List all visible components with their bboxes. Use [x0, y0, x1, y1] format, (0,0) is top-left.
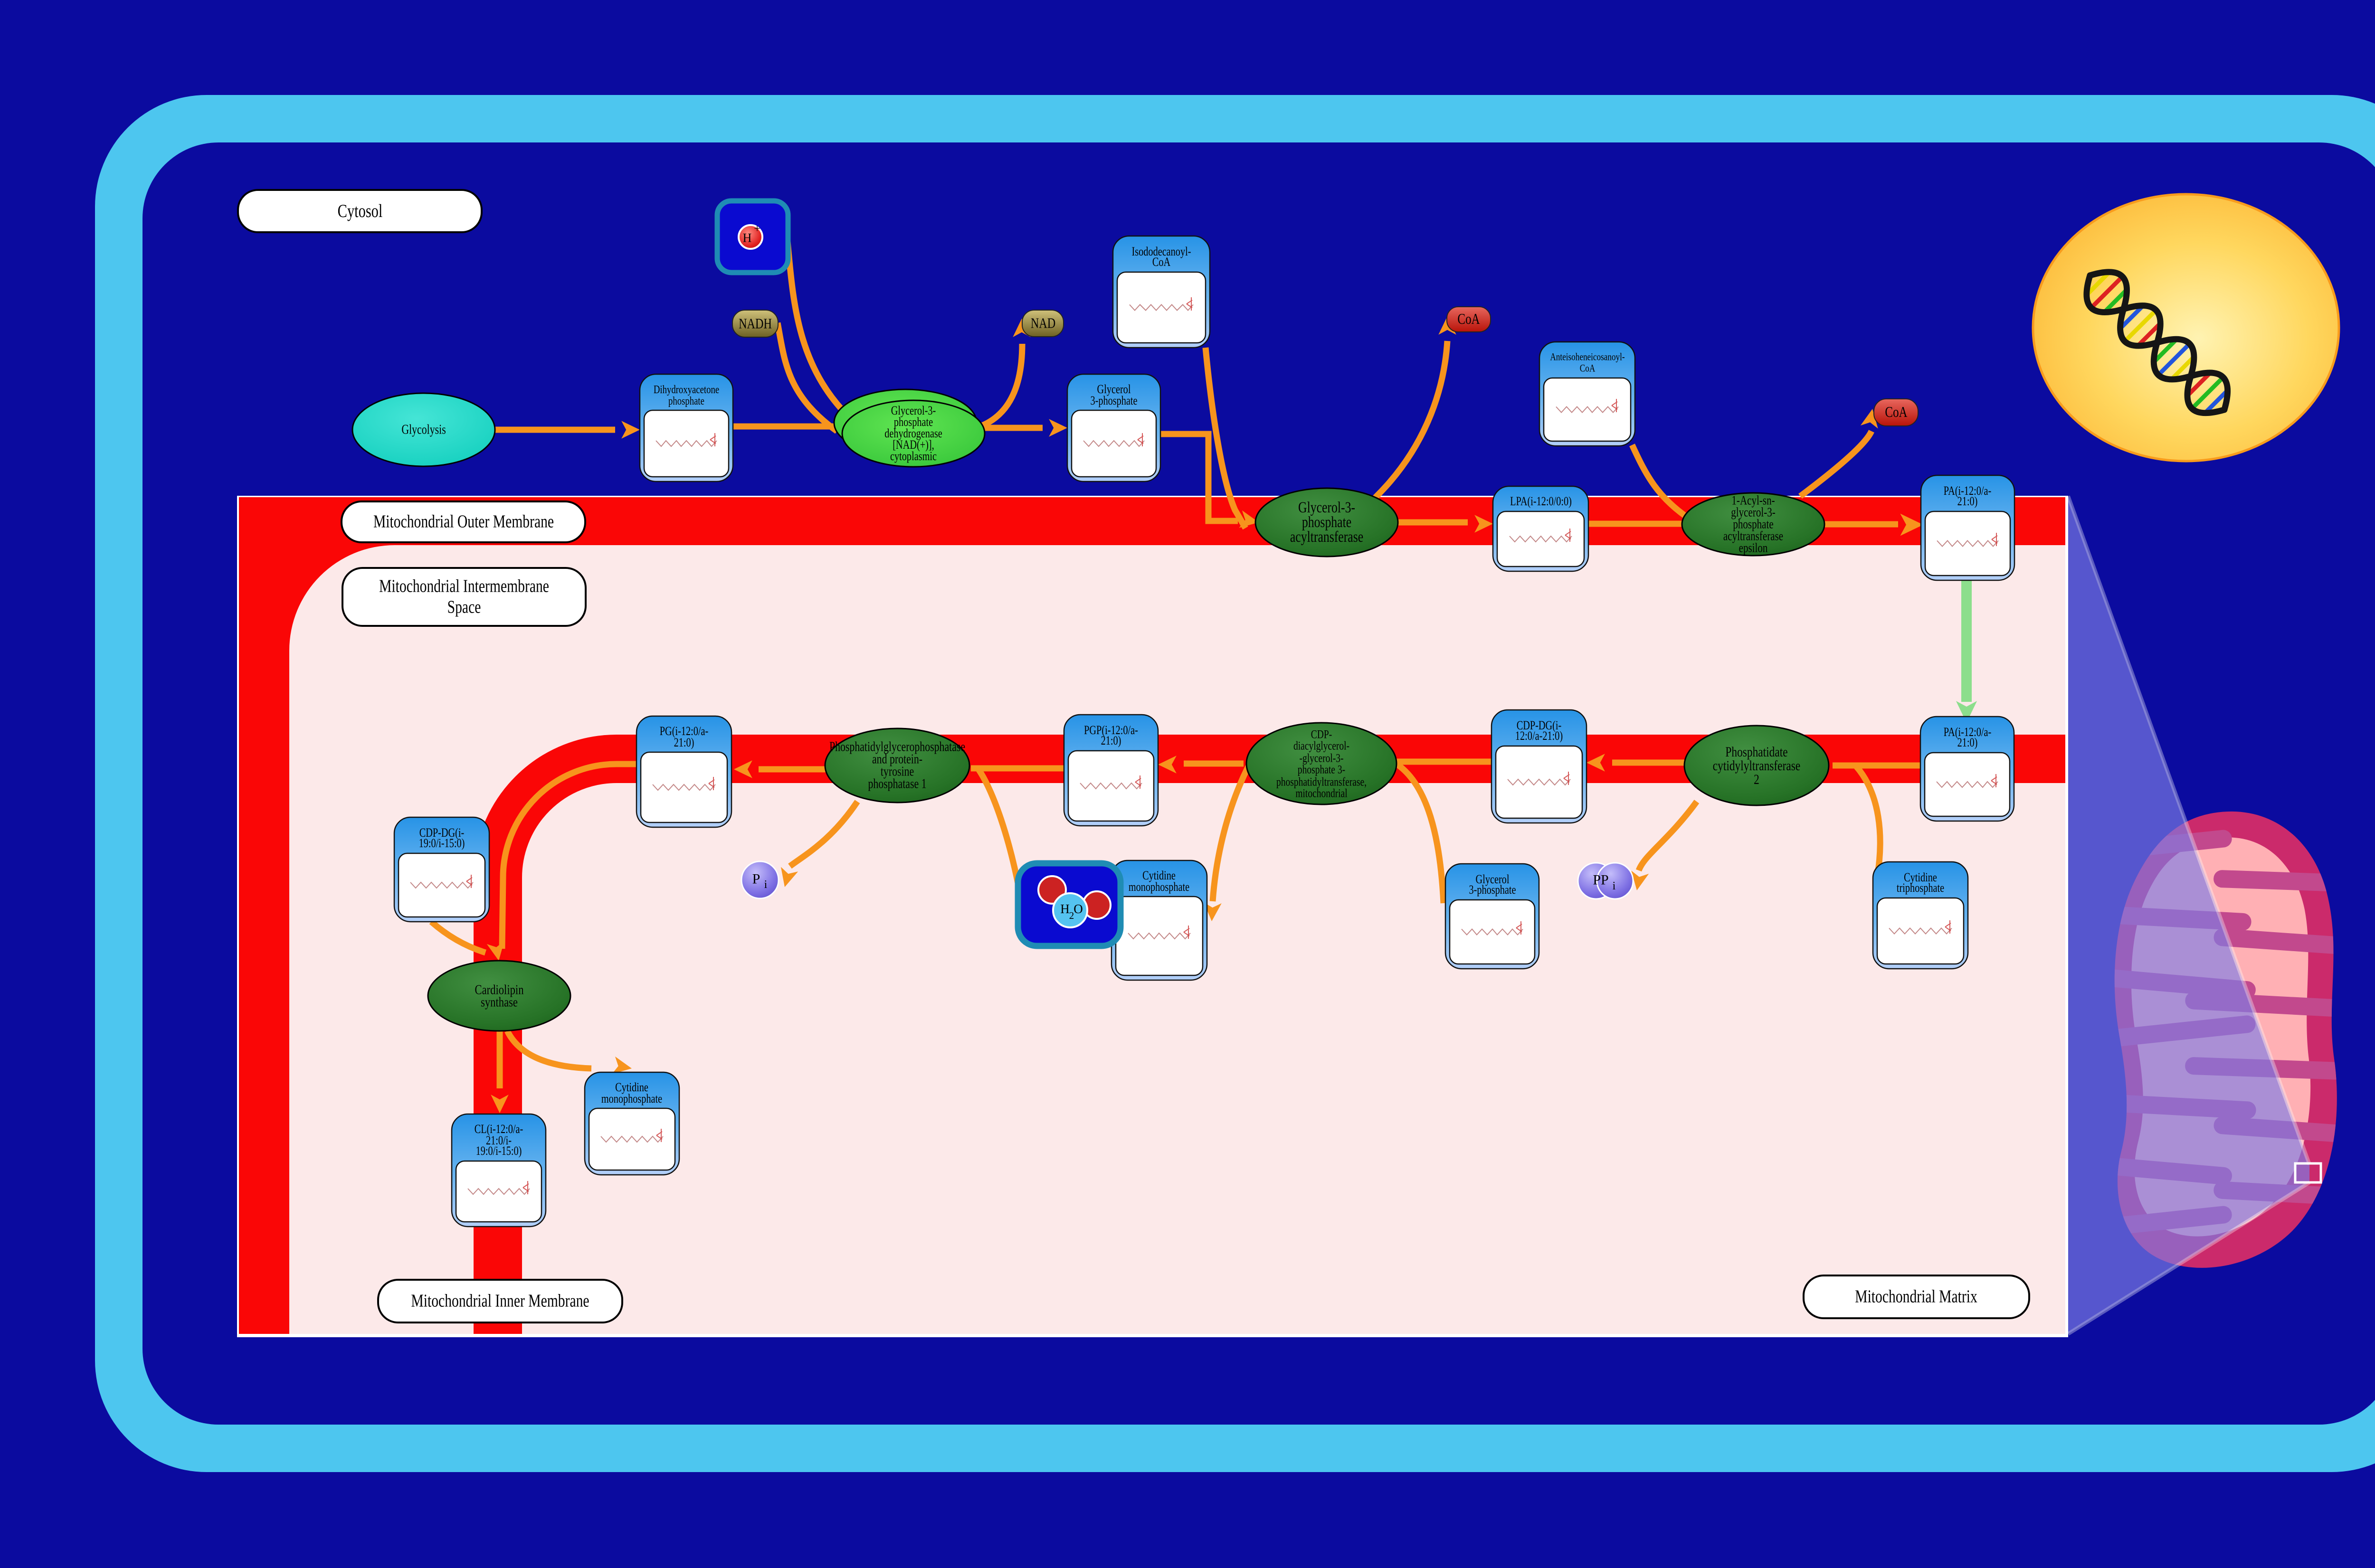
svg-text:Mitochondrial Outer Membrane: Mitochondrial Outer Membrane [373, 512, 554, 531]
svg-text:synthase: synthase [481, 994, 518, 1010]
svg-text:2: 2 [1754, 771, 1759, 787]
svg-text:CoA: CoA [1457, 311, 1480, 328]
svg-text:Dihydroxyacetone: Dihydroxyacetone [654, 383, 719, 396]
svg-text:19:0/i-15:0): 19:0/i-15:0) [419, 837, 465, 850]
svg-text:triphosphate: triphosphate [1897, 881, 1944, 895]
svg-text:Space: Space [447, 597, 481, 617]
svg-text:cytoplasmic: cytoplasmic [890, 450, 937, 463]
svg-text:O: O [1073, 902, 1083, 916]
svg-text:21:0): 21:0) [1957, 495, 1978, 509]
svg-text:19:0/i-15:0): 19:0/i-15:0) [476, 1144, 522, 1158]
svg-text:H: H [1060, 902, 1070, 916]
svg-text:H: H [743, 231, 752, 245]
svg-text:monophosphate: monophosphate [1129, 880, 1189, 894]
svg-text:Mitochondrial Matrix: Mitochondrial Matrix [1855, 1287, 1977, 1306]
svg-text:NADH: NADH [739, 316, 772, 332]
svg-text:phosphatase 1: phosphatase 1 [868, 777, 926, 791]
svg-text:Mitochondrial Inner Membrane: Mitochondrial Inner Membrane [411, 1291, 589, 1311]
svg-text:21:0): 21:0) [1101, 734, 1121, 748]
svg-text:epsilon: epsilon [1739, 541, 1768, 555]
svg-text:acyltransferase: acyltransferase [1290, 529, 1363, 546]
svg-text:NAD: NAD [1031, 315, 1055, 332]
svg-text:phosphate: phosphate [668, 395, 704, 407]
svg-text:diacylglycerol-: diacylglycerol- [1293, 739, 1349, 752]
svg-text:PP: PP [1593, 872, 1608, 888]
svg-text:mitochondrial: mitochondrial [1295, 786, 1347, 800]
svg-text:phosphate 3-: phosphate 3- [1298, 763, 1345, 776]
svg-text:3-phosphate: 3-phosphate [1469, 883, 1516, 897]
svg-text:Anteisoheneicosanoyl-: Anteisoheneicosanoyl- [1550, 351, 1624, 363]
svg-text:CoA: CoA [1885, 404, 1907, 421]
svg-text:Glycolysis: Glycolysis [401, 423, 446, 437]
svg-text:+: + [754, 223, 760, 235]
svg-text:Cytosol: Cytosol [338, 200, 383, 221]
svg-text:i: i [1613, 880, 1616, 892]
svg-text:3-phosphate: 3-phosphate [1090, 394, 1137, 408]
svg-text:monophosphate: monophosphate [601, 1092, 662, 1106]
svg-text:21:0): 21:0) [1957, 736, 1978, 750]
svg-text:CoA: CoA [1152, 255, 1170, 269]
svg-text:LPA(i-12:0/0:0): LPA(i-12:0/0:0) [1510, 495, 1572, 509]
svg-text:P: P [752, 871, 760, 887]
svg-text:Mitochondrial Intermembrane: Mitochondrial Intermembrane [379, 576, 549, 596]
svg-text:21:0): 21:0) [674, 736, 694, 750]
svg-text:CoA: CoA [1580, 363, 1596, 375]
svg-text:i: i [764, 878, 768, 891]
svg-text:12:0/a-21:0): 12:0/a-21:0) [1515, 729, 1563, 743]
